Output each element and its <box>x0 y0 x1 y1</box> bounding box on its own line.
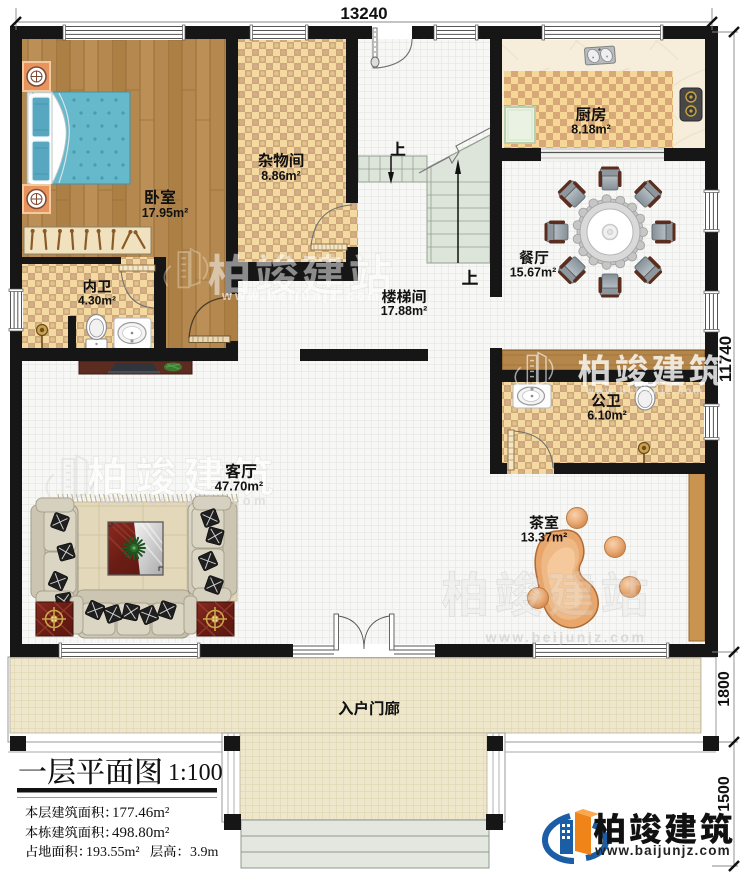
svg-text:17.95m²: 17.95m² <box>142 206 189 220</box>
svg-text:8.86m²: 8.86m² <box>261 169 301 183</box>
svg-text:177.46m²: 177.46m² <box>112 805 170 821</box>
svg-text:13240: 13240 <box>340 4 387 23</box>
svg-text:www.beijunjz.com: www.beijunjz.com <box>485 629 647 645</box>
svg-text:13.37m²: 13.37m² <box>521 531 568 545</box>
svg-text:17.88m²: 17.88m² <box>381 304 428 318</box>
svg-text:1800: 1800 <box>716 671 733 707</box>
svg-text:15.67m²: 15.67m² <box>510 266 557 280</box>
svg-text:1:100: 1:100 <box>168 760 223 786</box>
svg-text:3.9m: 3.9m <box>190 845 219 860</box>
svg-text:47.70m²: 47.70m² <box>215 479 264 494</box>
svg-text:193.55m²: 193.55m² <box>86 845 140 860</box>
svg-text:4.30m²: 4.30m² <box>78 294 116 308</box>
svg-text:6.10m²: 6.10m² <box>587 409 627 423</box>
svg-text:8.18m²: 8.18m² <box>571 123 611 137</box>
svg-text:498.80m²: 498.80m² <box>112 825 170 841</box>
svg-text:www.baijunjz.com: www.baijunjz.com <box>594 843 731 858</box>
svg-text:www.beijunjz.com: www.beijunjz.com <box>100 493 269 508</box>
svg-text:www.beijunjz.com: www.beijunjz.com <box>221 288 382 303</box>
svg-text:www.beijunjz.com: www.beijunjz.com <box>585 386 704 397</box>
svg-text:1500: 1500 <box>716 776 733 812</box>
